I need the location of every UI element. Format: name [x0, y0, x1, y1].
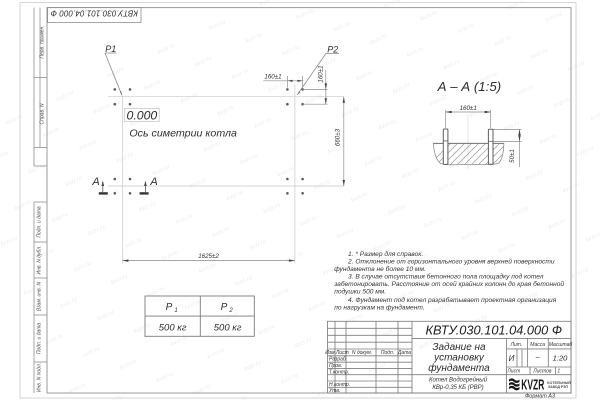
svg-text:kvzr.ru: kvzr.ru [257, 323, 276, 336]
svg-text:kvzr.ru: kvzr.ru [553, 96, 572, 109]
svg-text:kvzr.ru: kvzr.ru [576, 145, 595, 158]
svg-text:kvzr.ru: kvzr.ru [60, 297, 79, 310]
svg-text:kvzr.ru: kvzr.ru [539, 133, 558, 146]
svg-text:Р: Р [221, 302, 228, 313]
svg-text:1: 1 [557, 369, 560, 375]
svg-text:подушки 500 мм.: подушки 500 мм. [334, 288, 386, 296]
svg-text:kvzr.ru: kvzr.ru [502, 120, 521, 133]
svg-text:kvzr.ru: kvzr.ru [429, 95, 448, 108]
svg-text:kvzr.ru: kvzr.ru [494, 35, 513, 48]
svg-text:Взам. инв. N: Взам. инв. N [37, 282, 43, 312]
svg-text:установку: установку [433, 353, 485, 364]
svg-text:50±1: 50±1 [509, 149, 516, 163]
svg-text:kvzr.ru: kvzr.ru [226, 189, 245, 202]
svg-text:2. Отклонение от горизонтально: 2. Отклонение от горизонтального уровня … [347, 258, 555, 266]
svg-text:160±1: 160±1 [318, 65, 325, 82]
svg-text:Подп. и дата: Подп. и дата [37, 206, 43, 238]
svg-text:kvzr.ru: kvzr.ru [280, 372, 299, 385]
svg-text:kvzr.ru: kvzr.ru [364, 155, 383, 168]
svg-text:Пров.: Пров. [329, 363, 342, 369]
svg-text:kvzr.ru: kvzr.ru [56, 90, 75, 103]
svg-text:160±1: 160±1 [460, 105, 477, 112]
svg-text:kvzr.ru: kvzr.ru [415, 131, 434, 144]
svg-text:Задание на: Задание на [432, 342, 486, 353]
svg-text:kvzr.ru: kvzr.ru [424, 216, 443, 229]
svg-text:kvzr.ru: kvzr.ru [42, 126, 61, 139]
svg-text:kvzr.ru: kvzr.ru [313, 178, 332, 191]
svg-text:Перв. примен.: Перв. примен. [40, 25, 46, 58]
svg-text:kvzr.ru: kvzr.ru [277, 166, 296, 179]
svg-text:забетонировать. Расстояние от: забетонировать. Расстояние от осей крайн… [333, 280, 564, 288]
svg-text:KVZR: KVZR [521, 376, 544, 393]
svg-text:kvzr.ru: kvzr.ru [212, 226, 231, 239]
svg-text:И: И [509, 354, 515, 363]
svg-text:kvzr.ru: kvzr.ru [294, 336, 313, 349]
svg-text:kvzr.ru: kvzr.ru [282, 44, 301, 57]
svg-text:kvzr.ru: kvzr.ru [332, 20, 351, 33]
svg-text:1. * Размер для справок.: 1. * Размер для справок. [348, 250, 423, 258]
svg-text:kvzr.ru: kvzr.ru [244, 360, 263, 373]
svg-text:kvzr.ru: kvzr.ru [88, 224, 107, 237]
svg-text:kvzr.ru: kvzr.ru [143, 79, 162, 92]
svg-text:Р1: Р1 [105, 44, 116, 54]
svg-text:kvzr.ru: kvzr.ru [497, 241, 516, 254]
svg-text:kvzr.ru: kvzr.ru [567, 60, 586, 73]
svg-text:Разраб.: Разраб. [329, 357, 347, 363]
svg-text:kvzr.ru: kvzr.ru [119, 358, 138, 371]
svg-text:kvzr.ru: kvzr.ru [193, 383, 212, 396]
svg-text:А – А (1:5): А – А (1:5) [437, 80, 502, 94]
svg-text:kvzr.ru: kvzr.ru [28, 162, 47, 175]
svg-text:А: А [91, 176, 99, 188]
svg-text:kvzr.ru: kvzr.ru [268, 80, 287, 93]
svg-text:kvzr.ru: kvzr.ru [107, 66, 126, 79]
svg-text:kvzr.ru: kvzr.ru [156, 371, 175, 384]
svg-text:kvzr.ru: kvzr.ru [147, 286, 166, 299]
svg-text:kvzr.ru: kvzr.ru [443, 58, 462, 71]
svg-text:kvzr.ru: kvzr.ru [96, 309, 115, 322]
svg-text:1:20: 1:20 [553, 354, 569, 363]
svg-text:kvzr.ru: kvzr.ru [355, 69, 374, 82]
svg-text:kvzr.ru: kvzr.ru [79, 139, 98, 152]
svg-text:500 кг: 500 кг [159, 323, 187, 334]
svg-text:kvzr.ru: kvzr.ru [457, 22, 476, 35]
svg-text:kvzr.ru: kvzr.ru [0, 150, 10, 163]
svg-text:kvzr.ru: kvzr.ru [82, 346, 101, 359]
svg-text:kvzr.ru: kvzr.ru [5, 113, 24, 126]
svg-text:kvzr.ru: kvzr.ru [544, 11, 563, 24]
svg-text:660±3: 660±3 [335, 128, 342, 146]
svg-text:Листов: Листов [532, 369, 552, 375]
svg-text:КВТУ.030.101.04.000 Ф: КВТУ.030.101.04.000 Ф [50, 8, 138, 17]
svg-text:kvzr.ru: kvzr.ru [110, 273, 129, 286]
svg-text:Масштаб: Масштаб [549, 342, 573, 348]
svg-text:160±1: 160±1 [264, 73, 281, 80]
svg-text:Изм.Лист: Изм.Лист [325, 350, 349, 356]
svg-text:kvzr.ru: kvzr.ru [51, 211, 70, 224]
svg-text:kvzr.ru: kvzr.ru [254, 117, 273, 130]
svg-text:фундамента: фундамента [428, 362, 490, 374]
svg-text:kvzr.ru: kvzr.ru [420, 9, 439, 22]
svg-text:1625±2: 1625±2 [198, 253, 219, 260]
svg-text:kvzr.ru: kvzr.ru [249, 238, 268, 251]
svg-text:kvzr.ru: kvzr.ru [530, 47, 549, 60]
svg-text:kvzr.ru: kvzr.ru [240, 153, 259, 166]
svg-text:kvzr.ru: kvzr.ru [474, 192, 493, 205]
svg-text:kvzr.ru: kvzr.ru [157, 42, 176, 55]
svg-text:kvzr.ru: kvzr.ru [231, 68, 250, 81]
svg-text:Инв. N подл.: Инв. N подл. [37, 363, 43, 392]
svg-text:kvzr.ru: kvzr.ru [65, 175, 84, 188]
svg-text:Лит.: Лит. [510, 342, 523, 348]
svg-text:kvzr.ru: kvzr.ru [378, 118, 397, 131]
svg-text:2: 2 [228, 308, 233, 314]
svg-text:Котел Водогрейный: Котел Водогрейный [429, 377, 488, 384]
svg-text:Подп.: Подп. [381, 350, 394, 356]
svg-text:КВр-0,35 КБ (РВР): КВр-0,35 КБ (РВР) [432, 385, 483, 391]
svg-text:kvzr.ru: kvzr.ru [585, 230, 600, 243]
svg-text:kvzr.ru: kvzr.ru [387, 204, 406, 217]
svg-text:КВТУ.030.101.04.000 Ф: КВТУ.030.101.04.000 Ф [426, 323, 563, 338]
svg-text:kvzr.ru: kvzr.ru [461, 229, 480, 242]
svg-text:Справ. N: Справ. N [40, 103, 46, 124]
svg-text:kvzr.ru: kvzr.ru [245, 31, 264, 44]
svg-text:kvzr.ru: kvzr.ru [208, 19, 227, 32]
svg-text:kvzr.ru: kvzr.ru [516, 84, 535, 97]
svg-text:–: – [535, 355, 540, 362]
svg-text:kvzr.ru: kvzr.ru [511, 205, 530, 218]
svg-text:kvzr.ru: kvzr.ru [291, 129, 310, 142]
svg-text:kvzr.ru: kvzr.ru [175, 213, 194, 226]
svg-text:Утв.: Утв. [329, 388, 340, 394]
svg-text:Т.контр.: Т.контр. [329, 370, 349, 376]
svg-text:по нагрузкам на фундамент.: по нагрузкам на фундамент. [334, 303, 425, 311]
svg-text:kvzr.ru: kvzr.ru [590, 109, 600, 122]
svg-text:kvzr.ru: kvzr.ru [308, 300, 327, 313]
svg-text:kvzr.ru: kvzr.ru [115, 151, 134, 164]
svg-text:kvzr.ru: kvzr.ru [296, 8, 315, 21]
svg-text:kvzr.ru: kvzr.ru [189, 177, 208, 190]
svg-text:kvzr.ru: kvzr.ru [105, 394, 124, 400]
svg-text:kvzr.ru: kvzr.ru [383, 0, 402, 10]
svg-text:kvzr.ru: kvzr.ru [263, 202, 282, 215]
svg-text:kvzr.ru: kvzr.ru [369, 33, 388, 46]
svg-text:Формат А3: Формат А3 [525, 394, 556, 400]
svg-text:kvzr.ru: kvzr.ru [336, 227, 355, 240]
svg-text:kvzr.ru: kvzr.ru [235, 275, 254, 288]
svg-text:kvzr.ru: kvzr.ru [406, 46, 425, 59]
svg-text:kvzr.ru: kvzr.ru [14, 199, 33, 212]
svg-text:kvzr.ru: kvzr.ru [562, 181, 581, 194]
svg-text:kvzr.ru: kvzr.ru [341, 106, 360, 119]
svg-text:kvzr.ru: kvzr.ru [198, 262, 217, 275]
svg-text:kvzr.ru: kvzr.ru [217, 104, 236, 117]
svg-text:ЗАВОД РЭП: ЗАВОД РЭП [548, 384, 568, 389]
svg-text:kvzr.ru: kvzr.ru [438, 180, 457, 193]
svg-text:kvzr.ru: kvzr.ru [299, 215, 318, 228]
svg-text:kvzr.ru: kvzr.ru [401, 167, 420, 180]
svg-text:0.000: 0.000 [127, 109, 158, 123]
svg-text:Дата: Дата [397, 350, 411, 356]
svg-text:kvzr.ru: kvzr.ru [207, 347, 226, 360]
svg-text:Р: Р [166, 302, 173, 313]
svg-text:1: 1 [174, 308, 177, 314]
svg-text:Лист: Лист [506, 369, 520, 375]
svg-text:kvzr.ru: kvzr.ru [180, 91, 199, 104]
svg-text:Подп. и дата: Подп. и дата [37, 323, 43, 355]
svg-text:Ось симетрии котла: Ось симетрии котла [129, 129, 237, 140]
svg-text:kvzr.ru: kvzr.ru [345, 312, 364, 325]
svg-text:kvzr.ru: kvzr.ru [74, 260, 93, 273]
svg-text:3. В случае отсутствия бетонно: 3. В случае отсутствия бетонного пола пл… [348, 273, 544, 281]
svg-text:kvzr.ru: kvzr.ru [133, 322, 152, 335]
svg-text:kvzr.ru: kvzr.ru [525, 169, 544, 182]
svg-text:kvzr.ru: kvzr.ru [194, 55, 213, 68]
svg-text:kvzr.ru: kvzr.ru [0, 235, 19, 248]
svg-text:Масса: Масса [530, 342, 545, 348]
svg-text:Р2: Р2 [327, 44, 338, 54]
svg-text:Инв. N дубл.: Инв. N дубл. [37, 246, 43, 275]
svg-text:4. Фундамент под котел разраба: 4. Фундамент под котел разрабатывает про… [348, 296, 557, 304]
svg-text:kvzr.ru: kvzr.ru [138, 200, 157, 213]
svg-text:kvzr.ru: kvzr.ru [93, 102, 112, 115]
svg-text:kvzr.ru: kvzr.ru [271, 287, 290, 300]
svg-text:А: А [149, 176, 157, 188]
svg-text:500 кг: 500 кг [214, 323, 242, 334]
svg-text:kvzr.ru: kvzr.ru [508, 0, 527, 12]
svg-text:N докум.: N докум. [352, 350, 372, 356]
svg-text:kvzr.ru: kvzr.ru [392, 82, 411, 95]
svg-text:kvzr.ru: kvzr.ru [350, 191, 369, 204]
svg-text:kvzr.ru: kvzr.ru [203, 140, 222, 153]
svg-text:kvzr.ru: kvzr.ru [548, 218, 567, 231]
svg-text:фундамента не более 10 мм.: фундамента не более 10 мм. [334, 265, 426, 273]
svg-text:kvzr.ru: kvzr.ru [571, 267, 590, 280]
svg-text:kvzr.ru: kvzr.ru [124, 237, 143, 250]
svg-text:kvzr.ru: kvzr.ru [46, 333, 65, 346]
